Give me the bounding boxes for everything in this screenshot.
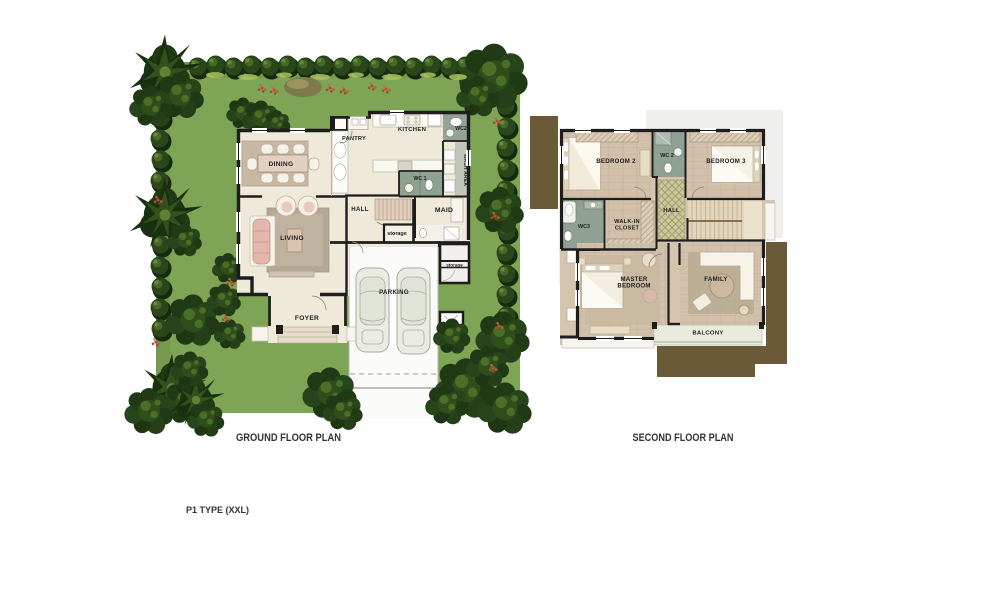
svg-text:SECOND FLOOR PLAN: SECOND FLOOR PLAN — [633, 432, 734, 444]
svg-text:P1 TYPE (XXL): P1 TYPE (XXL) — [186, 505, 249, 516]
svg-text:BEDROOM 2: BEDROOM 2 — [596, 158, 636, 165]
svg-text:WC2: WC2 — [455, 126, 467, 132]
svg-text:KITCHEN: KITCHEN — [398, 127, 426, 133]
svg-text:PANTRY: PANTRY — [342, 136, 366, 142]
svg-text:BALCONY: BALCONY — [692, 331, 723, 337]
svg-text:MAID: MAID — [435, 207, 453, 214]
svg-text:LIVING: LIVING — [280, 235, 304, 242]
svg-text:WC 2: WC 2 — [660, 153, 673, 159]
svg-text:WALK-IN: WALK-IN — [614, 219, 640, 225]
svg-text:BEDROOM 3: BEDROOM 3 — [706, 158, 746, 165]
svg-text:storage: storage — [387, 231, 406, 237]
svg-text:DINING: DINING — [269, 161, 294, 168]
svg-text:FAMILY: FAMILY — [704, 276, 728, 283]
svg-text:CLOSET: CLOSET — [615, 226, 640, 232]
svg-text:FOYER: FOYER — [295, 315, 319, 322]
svg-text:HALL: HALL — [663, 208, 680, 214]
svg-text:WC3: WC3 — [578, 224, 590, 230]
svg-text:GROUND FLOOR PLAN: GROUND FLOOR PLAN — [236, 432, 341, 444]
svg-text:storage: storage — [446, 263, 463, 268]
svg-text:HALL: HALL — [351, 206, 368, 213]
svg-text:PARKING: PARKING — [379, 289, 409, 296]
svg-text:WC 1: WC 1 — [414, 176, 427, 182]
svg-text:BEDROOM: BEDROOM — [617, 283, 650, 290]
